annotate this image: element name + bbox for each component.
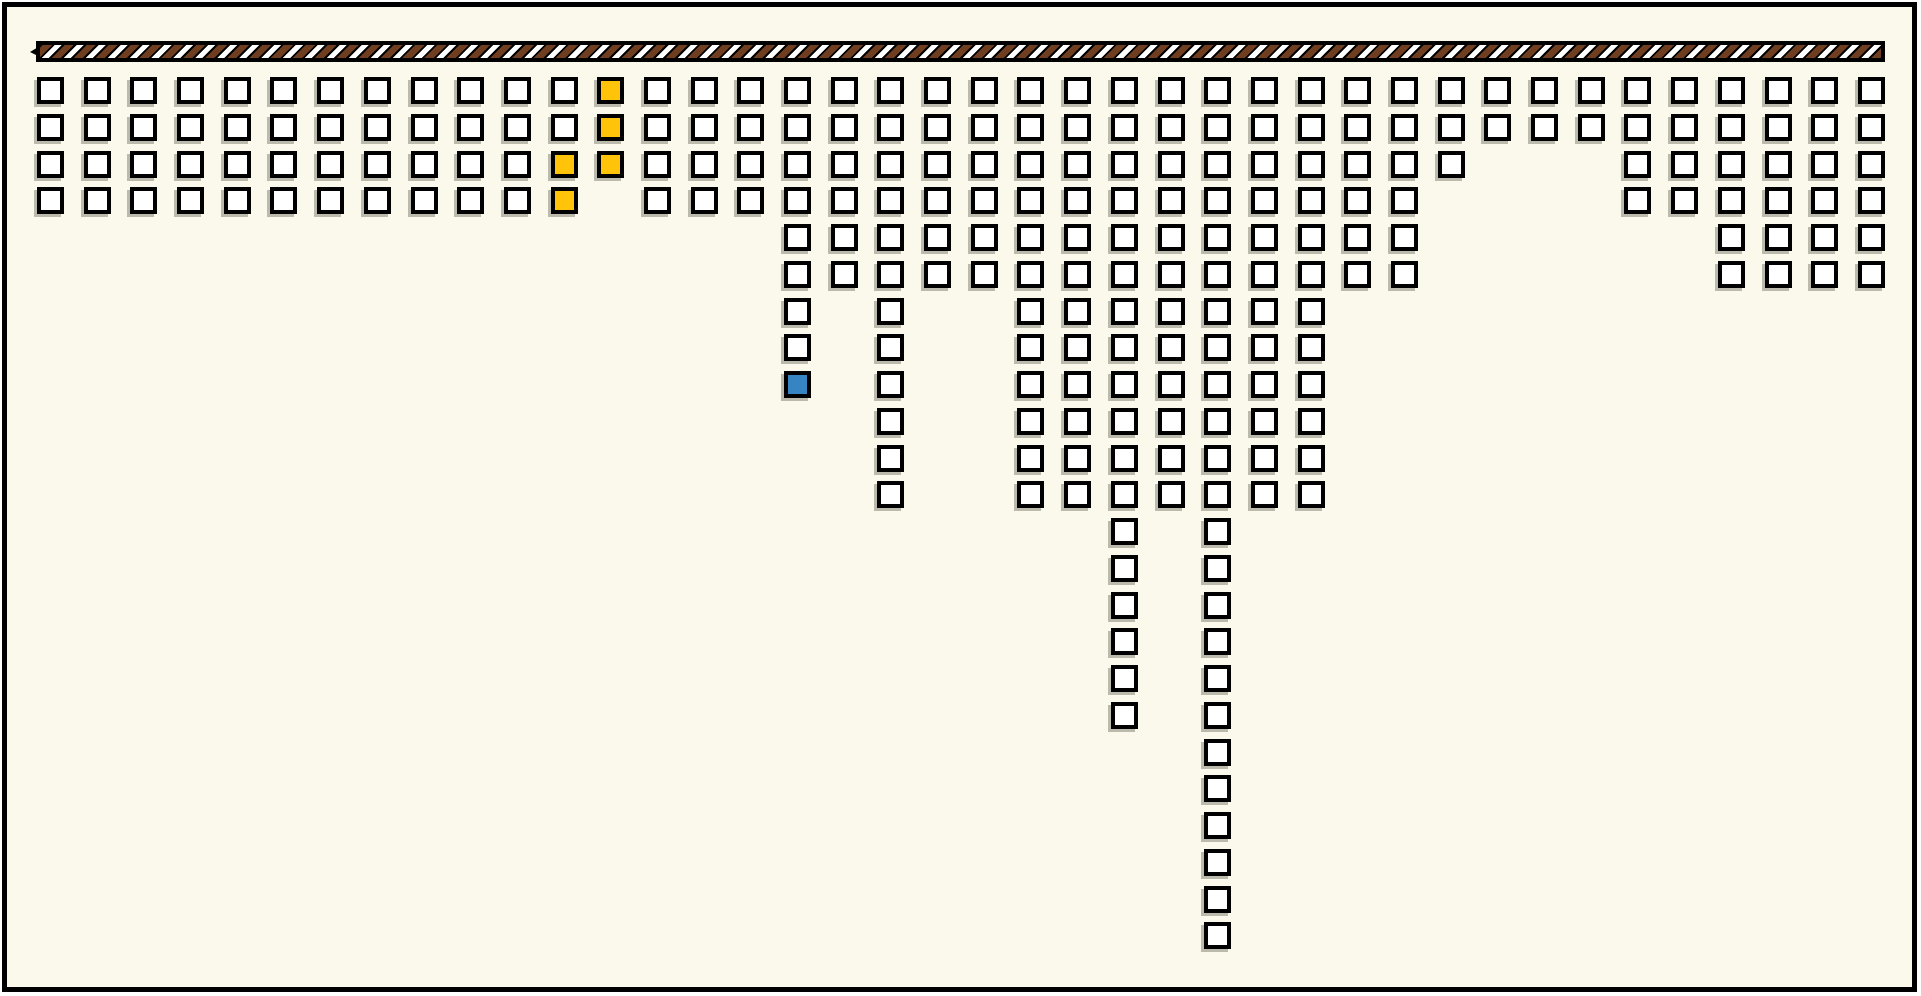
unit-square — [1811, 151, 1838, 178]
unit-square — [1204, 922, 1231, 949]
unit-square — [457, 151, 484, 178]
unit-square — [831, 261, 858, 288]
unit-square — [1204, 481, 1231, 508]
unit-square — [1344, 77, 1371, 104]
unit-square — [1858, 77, 1885, 104]
unit-square — [1204, 518, 1231, 545]
unit-square — [1718, 151, 1745, 178]
unit-square — [1111, 702, 1138, 729]
unit-square — [1251, 445, 1278, 472]
unit-square — [1158, 298, 1185, 325]
unit-square — [1111, 187, 1138, 214]
unit-square — [1718, 261, 1745, 288]
unit-square — [784, 224, 811, 251]
unit-square — [784, 334, 811, 361]
unit-square-blue — [784, 371, 811, 398]
unit-square — [1111, 592, 1138, 619]
unit-square — [1158, 77, 1185, 104]
unit-square — [877, 445, 904, 472]
unit-square — [270, 151, 297, 178]
unit-square — [971, 261, 998, 288]
unit-square — [1204, 224, 1231, 251]
unit-square — [1204, 739, 1231, 766]
unit-square — [644, 151, 671, 178]
unit-square — [551, 77, 578, 104]
unit-square — [831, 77, 858, 104]
unit-square — [1111, 77, 1138, 104]
unit-square — [1204, 445, 1231, 472]
unit-square — [1017, 114, 1044, 141]
unit-square — [1158, 445, 1185, 472]
unit-square — [1624, 151, 1651, 178]
unit-square — [1811, 261, 1838, 288]
unit-square — [1391, 151, 1418, 178]
unit-square — [1111, 628, 1138, 655]
unit-square — [1111, 445, 1138, 472]
unit-square — [1111, 298, 1138, 325]
unit-square — [1438, 114, 1465, 141]
unit-square — [1017, 151, 1044, 178]
unit-square — [1158, 224, 1185, 251]
unit-square — [1624, 114, 1651, 141]
unit-square — [1251, 261, 1278, 288]
unit-square — [1204, 628, 1231, 655]
unit-square — [1391, 77, 1418, 104]
unit-square — [224, 77, 251, 104]
unit-square — [924, 224, 951, 251]
unit-square — [1858, 224, 1885, 251]
unit-square — [1111, 665, 1138, 692]
unit-square — [784, 114, 811, 141]
unit-square — [1204, 812, 1231, 839]
unit-square — [1204, 298, 1231, 325]
unit-square — [1017, 445, 1044, 472]
unit-square — [1204, 702, 1231, 729]
unit-square-yellow — [551, 187, 578, 214]
unit-square — [1718, 77, 1745, 104]
unit-square — [831, 187, 858, 214]
unit-square — [1718, 187, 1745, 214]
unit-square — [270, 187, 297, 214]
unit-square — [1111, 261, 1138, 288]
unit-square — [1064, 114, 1091, 141]
unit-square — [1671, 114, 1698, 141]
unit-square — [971, 77, 998, 104]
unit-square — [411, 151, 438, 178]
unit-square — [1298, 261, 1325, 288]
unit-square — [1251, 371, 1278, 398]
unit-square — [1204, 114, 1231, 141]
unit-square — [877, 151, 904, 178]
unit-square — [1391, 261, 1418, 288]
unit-square — [1158, 261, 1185, 288]
unit-square — [1111, 481, 1138, 508]
unit-square — [1298, 334, 1325, 361]
unit-square — [1765, 114, 1792, 141]
unit-square — [831, 151, 858, 178]
unit-square — [1671, 77, 1698, 104]
unit-square — [1064, 224, 1091, 251]
unit-square — [364, 151, 391, 178]
unit-square — [1765, 151, 1792, 178]
unit-square — [1298, 481, 1325, 508]
unit-square — [1811, 187, 1838, 214]
unit-square — [1204, 151, 1231, 178]
unit-square — [1298, 151, 1325, 178]
unit-square — [1671, 187, 1698, 214]
unit-square — [1344, 261, 1371, 288]
unit-square — [1391, 187, 1418, 214]
unit-square — [37, 187, 64, 214]
unit-square — [1111, 408, 1138, 435]
unit-square — [1344, 114, 1371, 141]
unit-square — [1391, 114, 1418, 141]
unit-square — [1344, 151, 1371, 178]
unit-square — [1017, 481, 1044, 508]
unit-square — [1298, 114, 1325, 141]
unit-square-yellow — [597, 77, 624, 104]
unit-square — [364, 114, 391, 141]
unit-square — [224, 187, 251, 214]
unit-square — [1064, 371, 1091, 398]
unit-square — [1204, 371, 1231, 398]
unit-square — [411, 187, 438, 214]
unit-square-yellow — [597, 151, 624, 178]
unit-square — [971, 187, 998, 214]
unit-square — [1765, 77, 1792, 104]
unit-square — [317, 114, 344, 141]
unit-square — [1017, 261, 1044, 288]
unit-square — [1811, 77, 1838, 104]
unit-square — [1251, 224, 1278, 251]
unit-square — [1391, 224, 1418, 251]
unit-square — [877, 77, 904, 104]
unit-square — [1624, 77, 1651, 104]
unit-square — [924, 261, 951, 288]
unit-square — [504, 151, 531, 178]
unit-square — [1111, 224, 1138, 251]
unit-square — [1718, 114, 1745, 141]
unit-square — [1298, 187, 1325, 214]
unit-square — [1811, 224, 1838, 251]
unit-square — [1578, 77, 1605, 104]
unit-square — [1017, 298, 1044, 325]
unit-square — [84, 114, 111, 141]
unit-square — [1438, 77, 1465, 104]
unit-square — [1017, 371, 1044, 398]
unit-square — [364, 187, 391, 214]
unit-square — [130, 151, 157, 178]
unit-square — [877, 408, 904, 435]
unit-square — [691, 151, 718, 178]
unit-square — [1204, 849, 1231, 876]
unit-square — [457, 114, 484, 141]
unit-square — [37, 114, 64, 141]
unit-square — [1298, 445, 1325, 472]
unit-square — [1111, 518, 1138, 545]
unit-square — [130, 114, 157, 141]
unit-square — [1298, 77, 1325, 104]
unit-square — [1811, 114, 1838, 141]
unit-square — [270, 77, 297, 104]
unit-square — [1204, 77, 1231, 104]
unit-square — [1111, 371, 1138, 398]
unit-square — [1858, 114, 1885, 141]
unit-square — [1765, 187, 1792, 214]
unit-square — [224, 151, 251, 178]
unit-square — [84, 187, 111, 214]
unit-square — [1344, 187, 1371, 214]
unit-square — [1438, 151, 1465, 178]
unit-square — [1251, 481, 1278, 508]
unit-square — [270, 114, 297, 141]
unit-square — [1251, 334, 1278, 361]
unit-square-yellow — [551, 151, 578, 178]
unit-square — [1204, 187, 1231, 214]
unit-square — [1204, 334, 1231, 361]
unit-square — [177, 187, 204, 214]
unit-square — [1204, 408, 1231, 435]
unit-square — [1111, 114, 1138, 141]
unit-square — [924, 77, 951, 104]
unit-square — [1158, 371, 1185, 398]
unit-square — [84, 77, 111, 104]
unit-square — [37, 77, 64, 104]
unit-square — [411, 114, 438, 141]
unit-square — [1765, 224, 1792, 251]
unit-square — [177, 77, 204, 104]
unit-square — [877, 187, 904, 214]
unit-square — [1298, 224, 1325, 251]
unit-square — [1064, 408, 1091, 435]
unit-square — [1251, 187, 1278, 214]
unit-square — [504, 187, 531, 214]
unit-square — [877, 261, 904, 288]
unit-square — [457, 77, 484, 104]
unit-square — [691, 187, 718, 214]
unit-square — [1484, 114, 1511, 141]
unit-square — [1111, 334, 1138, 361]
unit-square — [1531, 77, 1558, 104]
unit-square — [644, 187, 671, 214]
unit-square — [1251, 114, 1278, 141]
unit-square — [737, 77, 764, 104]
unit-square — [504, 114, 531, 141]
unit-square — [971, 224, 998, 251]
unit-square — [1578, 114, 1605, 141]
unit-square — [411, 77, 438, 104]
unit-square — [1158, 114, 1185, 141]
unit-square — [1158, 408, 1185, 435]
unit-square — [551, 114, 578, 141]
unit-square — [1158, 151, 1185, 178]
unit-square — [971, 114, 998, 141]
unit-square — [737, 151, 764, 178]
unit-square — [1017, 187, 1044, 214]
unit-square — [1204, 261, 1231, 288]
unit-square — [971, 151, 998, 178]
unit-square — [1204, 775, 1231, 802]
unit-columns — [0, 0, 1921, 996]
unit-square — [130, 77, 157, 104]
unit-square — [877, 481, 904, 508]
unit-square — [317, 77, 344, 104]
unit-square — [1064, 334, 1091, 361]
unit-square — [644, 77, 671, 104]
unit-square — [1204, 555, 1231, 582]
unit-square — [1064, 261, 1091, 288]
unit-square — [1251, 298, 1278, 325]
unit-square — [504, 77, 531, 104]
unit-square — [1064, 77, 1091, 104]
unit-square — [877, 298, 904, 325]
unit-square — [1158, 334, 1185, 361]
unit-square — [877, 224, 904, 251]
unit-square — [1064, 187, 1091, 214]
unit-square — [1204, 886, 1231, 913]
unit-square — [84, 151, 111, 178]
unit-square — [831, 114, 858, 141]
unit-square — [1064, 298, 1091, 325]
unit-square — [1111, 555, 1138, 582]
unit-square — [1158, 187, 1185, 214]
unit-square — [1858, 261, 1885, 288]
unit-square — [1017, 334, 1044, 361]
unit-square — [1765, 261, 1792, 288]
unit-square — [924, 151, 951, 178]
unit-square — [1858, 187, 1885, 214]
unit-square — [1204, 665, 1231, 692]
unit-square — [924, 114, 951, 141]
unit-square — [1251, 77, 1278, 104]
unit-square — [1251, 151, 1278, 178]
unit-square — [1298, 371, 1325, 398]
unit-square — [1718, 224, 1745, 251]
unit-square — [1344, 224, 1371, 251]
unit-square — [1671, 151, 1698, 178]
unit-square — [784, 261, 811, 288]
unit-square — [1298, 298, 1325, 325]
unit-square — [644, 114, 671, 141]
unit-square — [1624, 187, 1651, 214]
unit-square-yellow — [597, 114, 624, 141]
unit-square — [924, 187, 951, 214]
unit-square — [1531, 114, 1558, 141]
unit-square — [37, 151, 64, 178]
unit-square — [1064, 481, 1091, 508]
unit-square — [457, 187, 484, 214]
unit-square — [877, 371, 904, 398]
unit-square — [784, 77, 811, 104]
unit-square — [1251, 408, 1278, 435]
unit-square — [177, 151, 204, 178]
unit-square — [1017, 408, 1044, 435]
unit-square — [317, 187, 344, 214]
unit-square — [1158, 481, 1185, 508]
unit-square — [1017, 224, 1044, 251]
unit-square — [1064, 151, 1091, 178]
unit-square — [691, 77, 718, 104]
unit-square — [1017, 77, 1044, 104]
unit-square — [1858, 151, 1885, 178]
unit-square — [177, 114, 204, 141]
unit-square — [224, 114, 251, 141]
unit-square — [784, 151, 811, 178]
unit-square — [317, 151, 344, 178]
unit-square — [1111, 151, 1138, 178]
unit-square — [784, 187, 811, 214]
unit-square — [784, 298, 811, 325]
unit-square — [737, 187, 764, 214]
unit-square — [130, 187, 157, 214]
unit-square — [1204, 592, 1231, 619]
unit-square — [1298, 408, 1325, 435]
unit-square — [1064, 445, 1091, 472]
unit-square — [691, 114, 718, 141]
unit-square — [877, 114, 904, 141]
unit-square — [737, 114, 764, 141]
unit-square — [1484, 77, 1511, 104]
unit-square — [364, 77, 391, 104]
unit-square — [877, 334, 904, 361]
unit-square — [831, 224, 858, 251]
